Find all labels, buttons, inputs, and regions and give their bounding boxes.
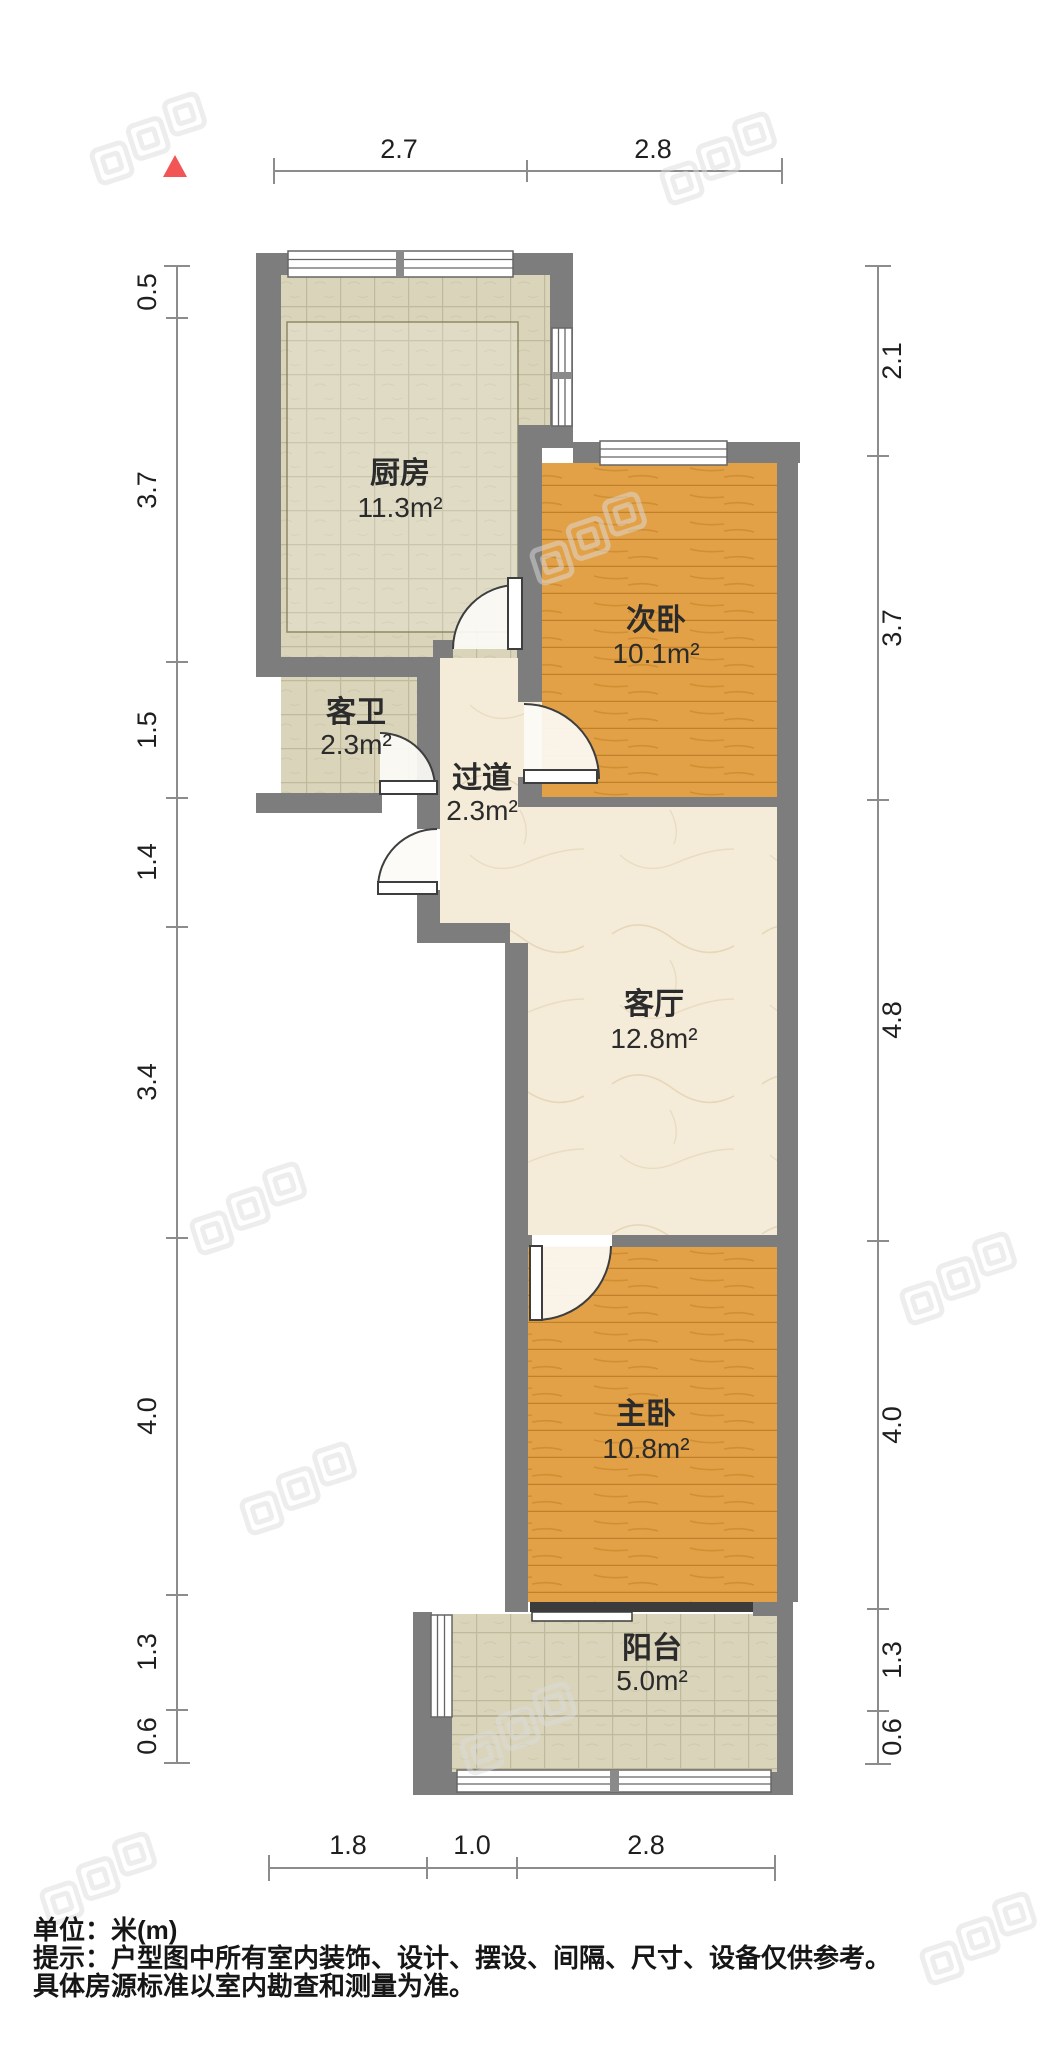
wall-kitchen-topright-corner: [550, 253, 573, 330]
dim-left-2: 3.7: [132, 471, 162, 509]
north-indicator-icon: [163, 155, 187, 177]
wall-hallway-bottom: [417, 923, 510, 943]
side-window: [552, 328, 572, 426]
room-area-hallway: 2.3m²: [446, 795, 518, 826]
dim-left-1: 0.5: [132, 273, 162, 311]
wall-living-left: [505, 943, 528, 1612]
dim-left-5: 3.4: [132, 1063, 162, 1101]
footer-unit-line: 单位：米(m): [33, 1916, 891, 1944]
room-label-balcony: 阳台: [622, 1631, 682, 1665]
dim-right-2: 3.7: [877, 609, 907, 647]
dim-bottom-3: 2.8: [627, 1830, 665, 1860]
footer-note: 单位：米(m) 提示：户型图中所有室内装饰、设计、摆设、间隔、尺寸、设备仅供参考…: [33, 1916, 891, 2000]
wall-master-bottom-stub: [753, 1602, 777, 1616]
room-area-guest-bath: 2.3m²: [320, 729, 392, 760]
wall-balcony-right: [777, 1602, 793, 1795]
wall-hallway-left-upper: [417, 657, 440, 829]
dim-top-1: 2.7: [380, 134, 418, 164]
wall-balcony-left: [413, 1612, 432, 1795]
balcony-left-window: [431, 1615, 452, 1717]
wall-kitchen-left: [256, 253, 281, 677]
wall-connector: [518, 425, 573, 448]
dim-left-6: 4.0: [132, 1397, 162, 1435]
sliding-door-track: [530, 1602, 753, 1612]
dim-bottom-2: 1.0: [453, 1830, 491, 1860]
dim-top-2: 2.8: [634, 134, 672, 164]
room-label-kitchen: 厨房: [370, 457, 430, 490]
dim-left-8: 0.6: [132, 1717, 162, 1755]
room-area-balcony: 5.0m²: [616, 1665, 688, 1696]
room-label-master-bedroom: 主卧: [616, 1398, 676, 1431]
dim-left-4: 1.4: [132, 843, 162, 881]
entry-door: [378, 829, 437, 894]
dim-right-1: 2.1: [877, 342, 907, 380]
wall-master-top-right: [612, 1235, 777, 1247]
footer-tip-line1: 提示：户型图中所有室内装饰、设计、摆设、间隔、尺寸、设备仅供参考。: [33, 1944, 891, 1972]
bedroom2-window: [600, 441, 727, 465]
room-area-kitchen: 11.3m²: [357, 492, 442, 523]
floorplan-page: 厨房 11.3m² 客卫 2.3m² 过道 2.3m² 次卧 10.1m² 客厅…: [0, 0, 1056, 2048]
room-label-hallway: 过道: [452, 762, 512, 795]
kitchen-window: [288, 251, 513, 277]
wall-bedroom2-bottom: [523, 797, 777, 807]
living-room-floor: [505, 923, 777, 1235]
wall-kitchen-door-left: [433, 640, 453, 658]
room-label-guest-bath: 客卫: [326, 695, 386, 729]
balcony-bottom-window: [457, 1770, 771, 1792]
dimension-right: 2.1 3.7 4.8 4.0 1.3 0.6: [865, 266, 907, 1764]
room-area-second-bedroom: 10.1m²: [612, 638, 699, 669]
dimension-left: 0.5 3.7 1.5 1.4 3.4 4.0 1.3 0.6: [132, 266, 190, 1763]
wall-hallway-left-lower: [417, 890, 440, 927]
dim-right-3: 4.8: [877, 1001, 907, 1039]
dim-right-6: 0.6: [877, 1718, 907, 1756]
room-area-living-room: 12.8m²: [610, 1023, 697, 1054]
dim-left-7: 1.3: [132, 1633, 162, 1671]
room-label-living-room: 客厅: [624, 987, 684, 1021]
wall-bathroom-top: [256, 657, 433, 677]
sliding-door-panel: [532, 1612, 632, 1621]
dim-bottom-1: 1.8: [329, 1830, 367, 1860]
floorplan-drawing: 厨房 11.3m² 客卫 2.3m² 过道 2.3m² 次卧 10.1m² 客厅…: [0, 0, 1056, 2048]
footer-tip-line2: 具体房源标准以室内勘查和测量为准。: [33, 1972, 891, 2000]
dim-left-3: 1.5: [132, 711, 162, 749]
room-area-master-bedroom: 10.8m²: [602, 1433, 689, 1464]
dim-right-4: 4.0: [877, 1406, 907, 1444]
room-label-second-bedroom: 次卧: [626, 604, 686, 637]
wall-right-outer: [777, 442, 798, 1602]
dimension-bottom: 1.8 1.0 2.8: [269, 1830, 775, 1881]
wall-bathroom-bottom: [256, 793, 382, 813]
dim-right-5: 1.3: [877, 1641, 907, 1679]
